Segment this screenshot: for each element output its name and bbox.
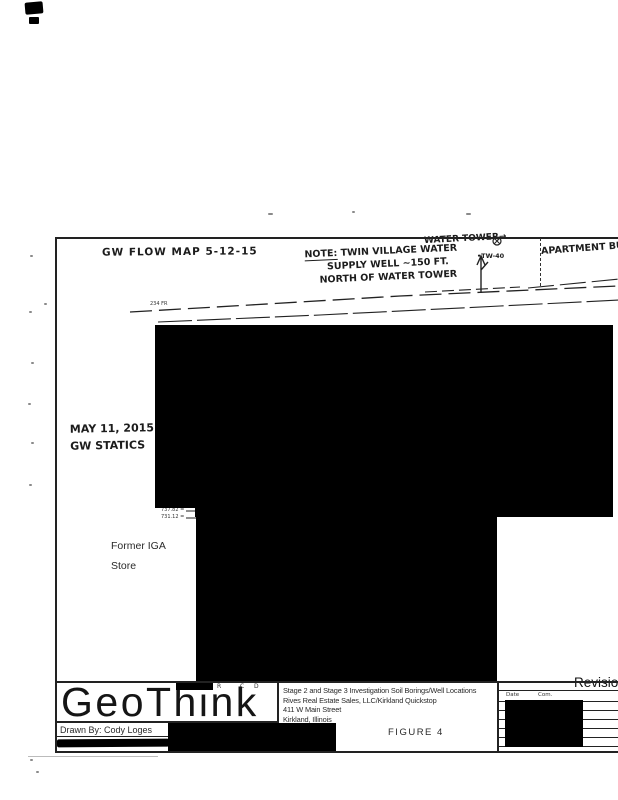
- former-iga-line1: Former IGA: [111, 536, 166, 556]
- redaction-strike-bar: [57, 739, 169, 748]
- redaction-box-upper: [155, 325, 613, 508]
- scanned-document-page: GW FLOW MAP 5-12-15 NOTE: TWIN VILLAGE W…: [0, 0, 618, 800]
- redaction-box-revisions: [505, 700, 583, 747]
- redaction-box-titleblock: [168, 723, 336, 751]
- property-boundary-dashed-line: [540, 238, 541, 286]
- former-iga-line2: Store: [111, 556, 166, 576]
- supply-well-note: NOTE: TWIN VILLAGE WATER SUPPLY WELL ~15…: [304, 242, 458, 288]
- redaction-legend-bar: [176, 683, 213, 690]
- redaction-box-lower: [196, 516, 497, 681]
- former-iga-label: Former IGA Store: [111, 536, 166, 576]
